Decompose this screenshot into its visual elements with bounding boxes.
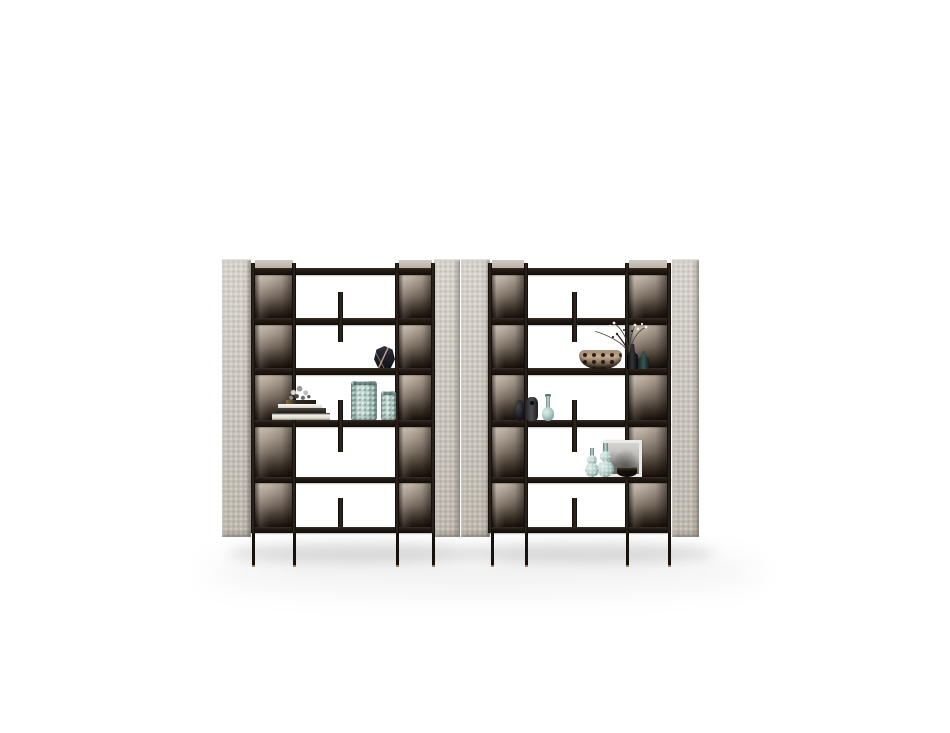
frame-post xyxy=(488,263,492,533)
bronze-back-cell xyxy=(255,427,293,477)
hobnail-vase-large xyxy=(351,381,377,420)
shelf-board xyxy=(251,318,435,325)
studio-backdrop xyxy=(0,0,950,733)
frame-post xyxy=(625,263,629,533)
bronze-back-cell xyxy=(399,275,432,318)
gourd-bottle-small xyxy=(585,448,599,477)
divider-fin xyxy=(572,292,577,342)
bottle-lower-lobe xyxy=(597,461,614,477)
bronze-back-cell xyxy=(255,325,293,368)
leg xyxy=(252,533,255,567)
shelf-board xyxy=(251,477,435,483)
shelf-board xyxy=(251,420,435,427)
leg xyxy=(491,533,494,567)
divider-fin xyxy=(572,400,577,452)
shelf-board xyxy=(251,268,435,275)
divider-fin xyxy=(338,292,343,342)
black-teardrop-vase xyxy=(514,400,525,421)
divider-fin xyxy=(338,498,343,527)
silver-sprig-ornament xyxy=(285,383,313,402)
frame-post xyxy=(431,263,435,533)
shelf-board xyxy=(251,527,435,533)
gourd-bottle-large xyxy=(597,443,614,477)
bronze-back-cell xyxy=(399,375,432,420)
shelf-board xyxy=(488,368,671,375)
shelf-board xyxy=(488,477,671,483)
charcoal-vase xyxy=(526,397,538,421)
teal-genie-bottle xyxy=(542,394,554,421)
black-bowl xyxy=(617,467,637,477)
bronze-back-cell xyxy=(629,275,667,318)
book xyxy=(276,408,326,413)
shelf-board xyxy=(488,268,671,275)
hobnail-vase-small xyxy=(381,391,396,420)
book-stack xyxy=(272,400,330,420)
leg xyxy=(396,533,399,567)
bronze-back-cell xyxy=(399,325,432,368)
leg xyxy=(293,533,296,567)
book xyxy=(272,413,330,420)
bottle-body xyxy=(542,407,554,421)
leg xyxy=(432,533,435,567)
bronze-back-cell xyxy=(629,375,667,420)
shelf-board xyxy=(488,527,671,533)
side-panel-left xyxy=(222,259,251,537)
shelf-board xyxy=(488,420,671,427)
side-panel-right xyxy=(672,259,699,537)
bronze-back-cell xyxy=(492,325,524,368)
frame-post xyxy=(251,263,255,533)
bronze-back-cell xyxy=(629,483,667,527)
bronze-back-cell xyxy=(255,483,293,527)
bookshelf-left xyxy=(222,259,460,568)
shelf-board xyxy=(251,368,435,375)
bottle-lower-lobe xyxy=(585,463,599,477)
divider-fin xyxy=(338,400,343,452)
bronze-back-cell xyxy=(492,275,524,318)
bronze-back-cell xyxy=(255,275,293,318)
frame-post xyxy=(667,263,671,533)
leg xyxy=(626,533,629,567)
side-panel-left xyxy=(461,259,490,537)
bronze-back-cell xyxy=(492,483,524,527)
side-panel-right xyxy=(434,259,460,537)
bronze-back-cell xyxy=(399,483,432,527)
leg xyxy=(525,533,528,567)
dried-flower-branches xyxy=(588,321,650,353)
divider-fin xyxy=(572,498,577,527)
leg xyxy=(668,533,671,567)
bookshelf-right xyxy=(461,259,699,568)
bronze-back-cell xyxy=(399,427,432,477)
book xyxy=(278,404,322,408)
bronze-back-cell xyxy=(492,427,524,477)
faceted-vase xyxy=(374,346,395,368)
